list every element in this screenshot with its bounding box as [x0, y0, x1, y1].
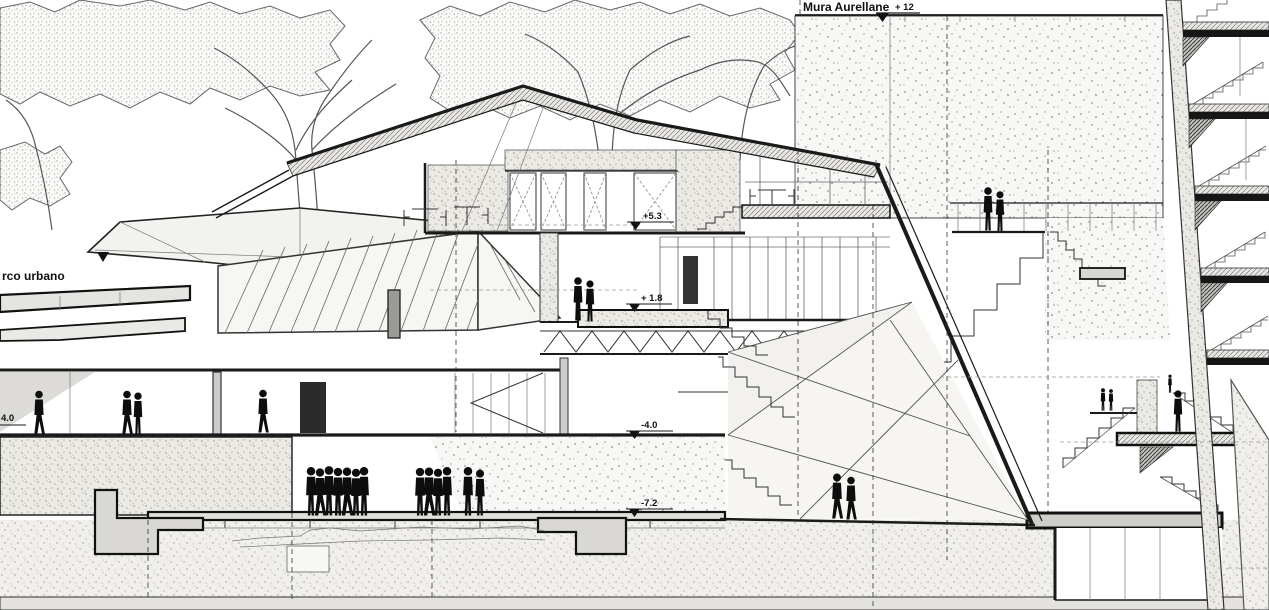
- dark-doorway: [300, 382, 326, 433]
- svg-text:-7.2: -7.2: [641, 498, 657, 509]
- svg-text:4.0: 4.0: [1, 413, 14, 424]
- terrace-slab: [742, 205, 890, 218]
- svg-text:+ 1.8: + 1.8: [641, 293, 662, 304]
- door-leaf: [683, 256, 698, 304]
- scupper-marker: [97, 252, 109, 262]
- visitor-group: [306, 466, 369, 515]
- section-drawing: Mura Aurellane + 12 rco urbano +5.3 + 1.…: [0, 0, 1269, 610]
- tree-canopy: [0, 0, 345, 108]
- gallery-pier: [560, 358, 568, 435]
- lower-room: [1055, 528, 1222, 600]
- floor-slab: [1117, 433, 1235, 445]
- excavation-trench: [287, 546, 329, 572]
- concrete-panel: [676, 150, 740, 233]
- wall-label: Mura Aurellane: [803, 0, 890, 14]
- door-swing-glyph: [471, 373, 543, 433]
- lower-floor-slab: [1027, 513, 1222, 528]
- back-wall: [430, 437, 725, 513]
- svg-text:+ 12: + 12: [895, 2, 914, 13]
- landing-slab: [1080, 268, 1125, 279]
- person-figure: [134, 393, 143, 435]
- glazed-wall: [660, 237, 890, 320]
- person-figure: [258, 390, 268, 433]
- wall-face: [795, 16, 1163, 218]
- person-figure: [1109, 389, 1113, 411]
- concrete-panel: [428, 165, 508, 231]
- person-figure: [122, 391, 132, 434]
- visitor-group: [415, 467, 452, 516]
- tree-canopy: [0, 142, 72, 210]
- underground-gallery: [0, 358, 725, 435]
- section-drawing-canvas: Mura Aurellane + 12 rco urbano +5.3 + 1.…: [0, 0, 1269, 610]
- aurelian-wall: [795, 15, 1170, 340]
- svg-text:-4.0: -4.0: [641, 420, 657, 431]
- person-figure: [1101, 388, 1106, 411]
- svg-text:+5.3: +5.3: [643, 211, 662, 222]
- person-figure: [1168, 375, 1172, 393]
- person-figure: [1174, 390, 1182, 431]
- lintel-band: [505, 150, 678, 170]
- park-label: rco urbano: [2, 269, 65, 283]
- hatched-pier: [1137, 380, 1157, 433]
- solid-mass: [0, 437, 292, 515]
- concrete-pier: [540, 233, 558, 322]
- cafe-table: [750, 189, 794, 204]
- slab-pocket: [1140, 447, 1173, 473]
- gallery-wall: [213, 372, 221, 435]
